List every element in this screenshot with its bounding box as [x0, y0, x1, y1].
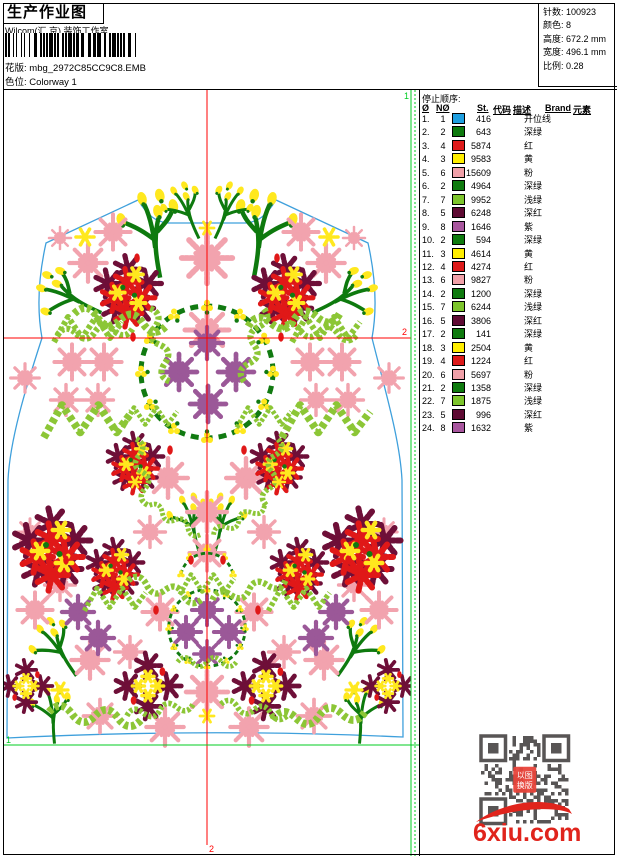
thread-color-swatch — [452, 153, 465, 164]
table-row: 6.24964深绿 — [419, 180, 617, 193]
color-description: 粉 — [524, 369, 533, 382]
stop-number: 24. — [422, 422, 435, 435]
table-row: 15.76244浅绿 — [419, 301, 617, 314]
needle-number: 8 — [438, 221, 448, 234]
height-row: 高度: 672.2 mm — [543, 33, 617, 46]
color-description: 黄 — [524, 248, 533, 261]
scale-row: 比例: 0.28 — [543, 60, 617, 73]
needle-number: 2 — [438, 382, 448, 395]
needle-number: 7 — [438, 395, 448, 408]
color-description: 浅绿 — [524, 194, 542, 207]
col-header-brand: Brand — [545, 103, 571, 113]
needle-number: 5 — [438, 207, 448, 220]
thread-color-swatch — [452, 422, 465, 433]
color-description: 粉 — [524, 167, 533, 180]
pattern-row: 花版: mbg_2972C85CC9C8.EMB — [5, 60, 146, 74]
needle-number: 3 — [438, 153, 448, 166]
color-description: 深红 — [524, 315, 542, 328]
needle-number: 1 — [438, 113, 448, 126]
colorway-label: 色位: — [5, 77, 27, 88]
stop-number: 5. — [422, 167, 430, 180]
stop-number: 13. — [422, 274, 435, 287]
stitch-count: 4614 — [465, 248, 491, 261]
stop-number: 15. — [422, 301, 435, 314]
table-row: 8.56248深红 — [419, 207, 617, 220]
thread-color-swatch — [452, 234, 465, 245]
table-row: 3.45874红 — [419, 140, 617, 153]
stitch-count: 9827 — [465, 274, 491, 287]
stitch-count: 4274 — [465, 261, 491, 274]
table-row: 10.2594深绿 — [419, 234, 617, 247]
thread-color-swatch — [452, 342, 465, 353]
stitch-count: 594 — [465, 234, 491, 247]
needle-number: 2 — [438, 328, 448, 341]
color-description: 深绿 — [524, 328, 542, 341]
thread-color-swatch — [452, 288, 465, 299]
thread-color-swatch — [452, 369, 465, 380]
color-description: 红 — [524, 355, 533, 368]
table-row: 2.2643深绿 — [419, 126, 617, 139]
stop-number: 19. — [422, 355, 435, 368]
thread-color-swatch — [452, 261, 465, 272]
col-header-st: St. — [477, 103, 489, 113]
thread-color-swatch — [452, 409, 465, 420]
table-row: 24.81632紫 — [419, 422, 617, 435]
needle-number: 2 — [438, 126, 448, 139]
header-separator — [3, 89, 617, 90]
stitch-count: 5697 — [465, 369, 491, 382]
thread-color-swatch — [452, 274, 465, 285]
pattern-label: 花版: — [5, 63, 27, 74]
design-info-box: 针数: 100923 颜色: 8 高度: 672.2 mm 宽度: 496.1 … — [538, 3, 617, 87]
color-description: 紫 — [524, 221, 533, 234]
color-description: 深红 — [524, 409, 542, 422]
thread-color-swatch — [452, 301, 465, 312]
thread-color-swatch — [452, 180, 465, 191]
table-row: 23.5996深红 — [419, 409, 617, 422]
table-row: 18.32504黄 — [419, 342, 617, 355]
stop-number: 8. — [422, 207, 430, 220]
table-row: 13.69827粉 — [419, 274, 617, 287]
stop-number: 10. — [422, 234, 435, 247]
thread-color-swatch — [452, 207, 465, 218]
stop-number: 18. — [422, 342, 435, 355]
colorway-row: 色位: Colorway 1 — [5, 74, 77, 88]
stop-number: 4. — [422, 153, 430, 166]
table-row: 7.79952浅绿 — [419, 194, 617, 207]
needle-number: 4 — [438, 261, 448, 274]
needle-number: 5 — [438, 409, 448, 422]
needle-number: 6 — [438, 167, 448, 180]
needle-number: 4 — [438, 140, 448, 153]
stop-number: 22. — [422, 395, 435, 408]
thread-color-swatch — [452, 126, 465, 137]
stitch-count: 1632 — [465, 422, 491, 435]
stop-number: 17. — [422, 328, 435, 341]
thread-color-swatch — [452, 315, 465, 326]
color-description: 红 — [524, 261, 533, 274]
color-description: 开位线 — [524, 113, 551, 126]
color-description: 深绿 — [524, 288, 542, 301]
table-row: 14.21200深绿 — [419, 288, 617, 301]
stop-number: 14. — [422, 288, 435, 301]
stop-number: 23. — [422, 409, 435, 422]
color-description: 粉 — [524, 274, 533, 287]
stop-number: 1. — [422, 113, 430, 126]
thread-color-swatch — [452, 328, 465, 339]
stitch-count: 9952 — [465, 194, 491, 207]
colorway-value: Colorway 1 — [29, 77, 77, 88]
stop-number: 9. — [422, 221, 430, 234]
pattern-value: mbg_2972C85CC9C8.EMB — [29, 63, 146, 74]
stop-number: 3. — [422, 140, 430, 153]
stop-number: 20. — [422, 369, 435, 382]
color-description: 浅绿 — [524, 301, 542, 314]
table-row: 21.21358深绿 — [419, 382, 617, 395]
table-row: 12.44274红 — [419, 261, 617, 274]
needle-number: 3 — [438, 248, 448, 261]
stitch-count: 4964 — [465, 180, 491, 193]
stitch-count: 643 — [465, 126, 491, 139]
table-row: 19.41224红 — [419, 355, 617, 368]
color-description: 深绿 — [524, 126, 542, 139]
color-count-row: 颜色: 8 — [543, 19, 617, 32]
stitch-count: 2504 — [465, 342, 491, 355]
stitch-count: 141 — [465, 328, 491, 341]
table-row: 20.65697粉 — [419, 369, 617, 382]
table-row: 17.2141深绿 — [419, 328, 617, 341]
needle-number: 6 — [438, 274, 448, 287]
stitch-count: 1224 — [465, 355, 491, 368]
thread-color-swatch — [452, 248, 465, 259]
stop-number: 16. — [422, 315, 435, 328]
stitch-count: 6244 — [465, 301, 491, 314]
needle-number: 6 — [438, 369, 448, 382]
watermark-site: 6xiu.com — [473, 819, 581, 848]
stop-number: 7. — [422, 194, 430, 207]
worksheet-page: 2211 以图换版 生产作业图 Wilcom(汇 京) 装饰工作室 花版: mb… — [0, 0, 620, 860]
thread-color-swatch — [452, 382, 465, 393]
color-description: 深绿 — [524, 234, 542, 247]
stitch-count: 1200 — [465, 288, 491, 301]
table-row: 5.615609粉 — [419, 167, 617, 180]
thread-color-swatch — [452, 194, 465, 205]
color-description: 黄 — [524, 342, 533, 355]
needle-number: 2 — [438, 180, 448, 193]
stitch-count: 1646 — [465, 221, 491, 234]
table-row: 11.34614黄 — [419, 248, 617, 261]
needle-number: 7 — [438, 301, 448, 314]
stitch-count: 6248 — [465, 207, 491, 220]
color-description: 红 — [524, 140, 533, 153]
stitch-count: 1358 — [465, 382, 491, 395]
stop-number: 12. — [422, 261, 435, 274]
stitch-count: 1875 — [465, 395, 491, 408]
stop-number: 11. — [422, 248, 434, 261]
page-title: 生产作业图 — [3, 3, 104, 24]
stitch-count: 5874 — [465, 140, 491, 153]
needle-number: 4 — [438, 355, 448, 368]
needle-number: 2 — [438, 234, 448, 247]
thread-color-swatch — [452, 167, 465, 178]
needle-number: 7 — [438, 194, 448, 207]
needle-number: 5 — [438, 315, 448, 328]
barcode — [5, 33, 201, 57]
needle-number: 2 — [438, 288, 448, 301]
stitch-count: 996 — [465, 409, 491, 422]
table-row: 9.81646紫 — [419, 221, 617, 234]
page-title-text: 生产作业图 — [7, 4, 87, 21]
needle-number: 8 — [438, 422, 448, 435]
stitch-count: 15609 — [465, 167, 491, 180]
thread-color-swatch — [452, 113, 465, 124]
stitch-count: 9583 — [465, 153, 491, 166]
stop-number: 21. — [422, 382, 435, 395]
stop-number: 2. — [422, 126, 430, 139]
stop-number: 6. — [422, 180, 430, 193]
color-description: 紫 — [524, 422, 533, 435]
thread-color-swatch — [452, 355, 465, 366]
table-row: 16.53806深红 — [419, 315, 617, 328]
stitch-count: 416 — [465, 113, 491, 126]
table-row: 4.39583黄 — [419, 153, 617, 166]
color-description: 深绿 — [524, 382, 542, 395]
needle-number: 3 — [438, 342, 448, 355]
color-description: 黄 — [524, 153, 533, 166]
col-header-needle: NØ — [436, 103, 450, 113]
thread-color-swatch — [452, 140, 465, 151]
thread-color-swatch — [452, 221, 465, 232]
table-row: 1.1416开位线 — [419, 113, 617, 126]
col-header-stop: Ø — [422, 103, 429, 113]
color-description: 深绿 — [524, 180, 542, 193]
color-description: 深红 — [524, 207, 542, 220]
table-row: 22.71875浅绿 — [419, 395, 617, 408]
stitch-count: 3806 — [465, 315, 491, 328]
color-description: 浅绿 — [524, 395, 542, 408]
stitch-count-row: 针数: 100923 — [543, 6, 617, 19]
thread-color-swatch — [452, 395, 465, 406]
width-row: 宽度: 496.1 mm — [543, 46, 617, 59]
